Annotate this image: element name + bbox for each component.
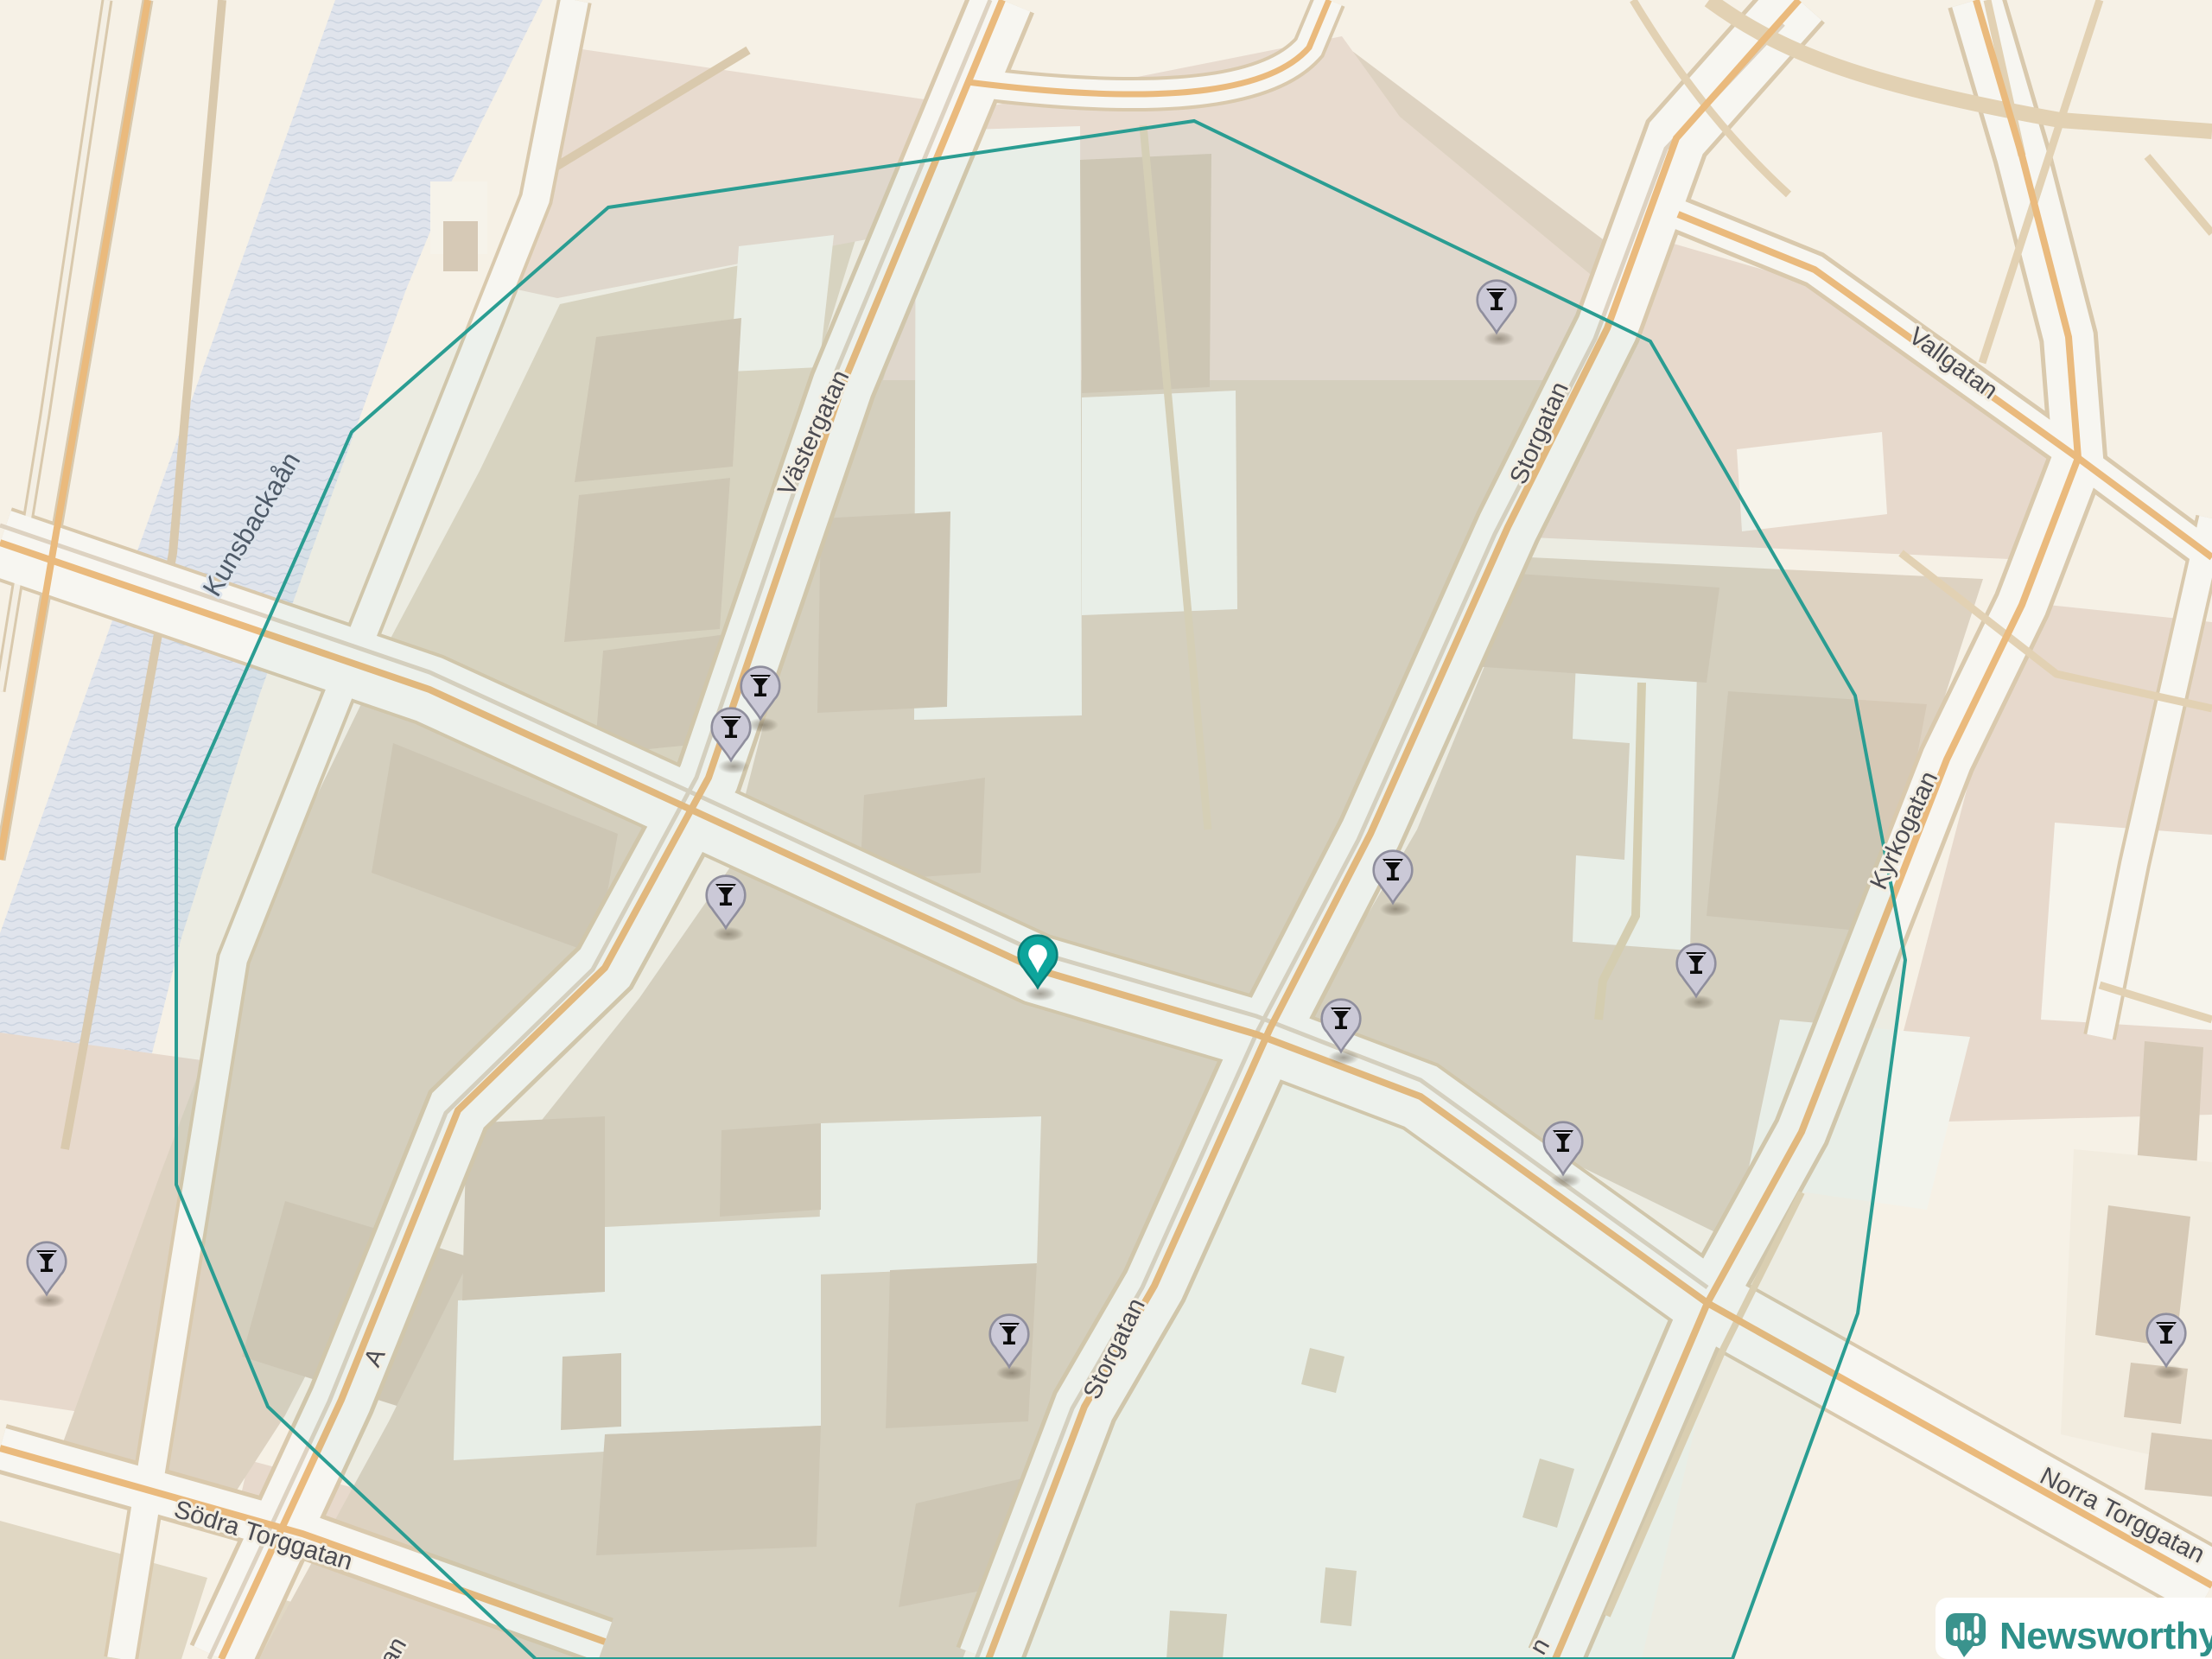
svg-text:Newsworthy: Newsworthy [1999,1615,2212,1657]
